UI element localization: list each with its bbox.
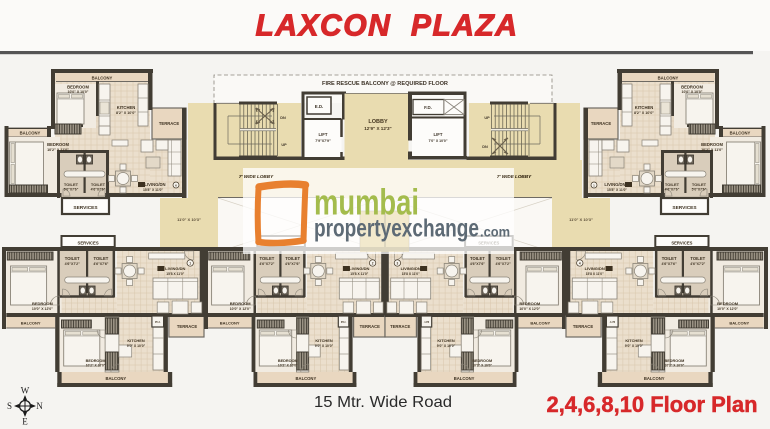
svg-text:LAXCON PLAZA: LAXCON PLAZA xyxy=(256,8,519,43)
svg-text:15 Mtr. Wide Road: 15 Mtr. Wide Road xyxy=(314,394,452,411)
svg-text:TOILET: TOILET xyxy=(665,182,680,187)
svg-text:LIVING/DN: LIVING/DN xyxy=(144,182,165,187)
svg-text:BALCONY: BALCONY xyxy=(729,321,749,326)
svg-text:7' WIDE LOBBY: 7' WIDE LOBBY xyxy=(239,174,274,179)
svg-text:LIVING/DN: LIVING/DN xyxy=(165,266,185,271)
svg-text:DN: DN xyxy=(280,116,286,120)
svg-text:10'2" X 11'0": 10'2" X 11'0" xyxy=(47,148,69,152)
svg-text:BEDROOM: BEDROOM xyxy=(86,359,106,363)
svg-text:TERRACE: TERRACE xyxy=(390,324,410,329)
svg-text:15'8 X 11'0": 15'8 X 11'0" xyxy=(402,272,420,276)
svg-text:BEDROOM: BEDROOM xyxy=(664,359,684,363)
svg-text:15'8 X 11'0": 15'8 X 11'0" xyxy=(166,272,184,276)
svg-text:3: 3 xyxy=(397,261,399,265)
svg-text:BALCONY: BALCONY xyxy=(296,376,317,381)
svg-text:11'0" X 10'3": 11'0" X 10'3" xyxy=(569,217,593,222)
svg-text:SERVICES: SERVICES xyxy=(671,241,692,246)
svg-text:1: 1 xyxy=(189,261,191,265)
svg-text:7'9"X7'9": 7'9"X7'9" xyxy=(315,139,331,143)
svg-text:TERRACE: TERRACE xyxy=(159,121,179,126)
svg-text:15'8" X 11'0": 15'8" X 11'0" xyxy=(607,188,627,192)
svg-text:TOILET: TOILET xyxy=(285,256,300,261)
svg-text:S: S xyxy=(7,401,12,411)
svg-text:10'0" X 12'0": 10'0" X 12'0" xyxy=(717,307,738,311)
svg-text:10'0" X 12'0": 10'0" X 12'0" xyxy=(32,307,53,311)
svg-text:KITCHEN: KITCHEN xyxy=(635,105,654,110)
svg-text:KITCHEN: KITCHEN xyxy=(437,338,454,343)
svg-text:TERRACE: TERRACE xyxy=(360,324,380,329)
svg-text:LOBBY: LOBBY xyxy=(368,119,388,125)
svg-text:7'0" X 10'0": 7'0" X 10'0" xyxy=(429,139,448,143)
svg-text:SERVICES: SERVICES xyxy=(78,241,99,246)
svg-text:BALCONY: BALCONY xyxy=(530,321,550,326)
svg-text:.com: .com xyxy=(480,224,510,240)
svg-text:4'6"X7'6": 4'6"X7'6" xyxy=(285,262,300,266)
svg-text:BEDROOM: BEDROOM xyxy=(472,359,492,363)
svg-text:4'6"X7'2": 4'6"X7'2" xyxy=(259,262,274,266)
svg-text:BEDROOM: BEDROOM xyxy=(278,359,298,363)
svg-text:10'2" X 10'0": 10'2" X 10'0" xyxy=(472,364,492,368)
svg-text:TOILET: TOILET xyxy=(496,256,511,261)
svg-text:BEDROOM: BEDROOM xyxy=(67,85,89,90)
svg-text:10'0" X 10'0": 10'0" X 10'0" xyxy=(68,90,89,94)
svg-text:UP: UP xyxy=(484,116,490,120)
svg-text:BEDROOM: BEDROOM xyxy=(32,301,54,306)
svg-text:KITCHEN: KITCHEN xyxy=(315,338,332,343)
svg-text:10'0" X 12'0": 10'0" X 12'0" xyxy=(230,307,251,311)
svg-text:8'2" X 10'0": 8'2" X 10'0" xyxy=(634,111,654,115)
svg-text:9'0" X 10'0": 9'0" X 10'0" xyxy=(625,344,644,348)
svg-text:E.D.: E.D. xyxy=(315,104,324,109)
svg-text:4'6"X7'6": 4'6"X7'6" xyxy=(665,188,680,192)
svg-text:F.D.: F.D. xyxy=(424,105,432,110)
svg-text:BALCONY: BALCONY xyxy=(454,376,475,381)
svg-text:BALCONY: BALCONY xyxy=(105,376,126,381)
svg-text:P.U.: P.U. xyxy=(609,320,615,324)
svg-text:KITCHEN: KITCHEN xyxy=(127,338,144,343)
svg-text:TOILET: TOILET xyxy=(470,256,485,261)
svg-text:BALCONY: BALCONY xyxy=(220,321,240,326)
svg-text:LIVING/DN: LIVING/DN xyxy=(349,266,369,271)
svg-text:4'6"X7'2": 4'6"X7'2" xyxy=(496,262,511,266)
svg-text:4'6"X7'6": 4'6"X7'6" xyxy=(662,262,677,266)
svg-text:15'8 X 11'0": 15'8 X 11'0" xyxy=(586,272,604,276)
svg-text:TOILET: TOILET xyxy=(93,256,108,261)
svg-text:4'6"X7'6": 4'6"X7'6" xyxy=(93,262,108,266)
svg-text:BEDROOM: BEDROOM xyxy=(717,301,739,306)
svg-text:P.U.: P.U. xyxy=(424,320,430,324)
svg-text:TOILET: TOILET xyxy=(692,182,707,187)
svg-text:LIVING/DN: LIVING/DN xyxy=(604,182,625,187)
svg-text:P.U.: P.U. xyxy=(341,320,347,324)
svg-text:BEDROOM: BEDROOM xyxy=(519,301,541,306)
svg-text:TERRACE: TERRACE xyxy=(573,324,593,329)
svg-text:10'2" X 11'0": 10'2" X 11'0" xyxy=(701,148,723,152)
svg-text:BALCONY: BALCONY xyxy=(92,76,113,81)
svg-text:TOILET: TOILET xyxy=(91,182,106,187)
svg-text:SERVICES: SERVICES xyxy=(73,205,98,211)
svg-text:8'2" X 10'0": 8'2" X 10'0" xyxy=(116,111,136,115)
svg-text:11'0" X 10'3": 11'0" X 10'3" xyxy=(177,217,201,222)
svg-text:BEDROOM: BEDROOM xyxy=(701,142,723,147)
svg-text:propertyexchange: propertyexchange xyxy=(314,215,479,243)
svg-text:SERVICES: SERVICES xyxy=(672,205,697,211)
svg-text:4'6"X7'2": 4'6"X7'2" xyxy=(65,262,80,266)
svg-text:9'0" X 10'0": 9'0" X 10'0" xyxy=(127,344,146,348)
svg-text:FIRE RESCUE BALCONY @ REQUIRED: FIRE RESCUE BALCONY @ REQUIRED FLOOR xyxy=(322,81,448,87)
svg-text:LIVING/DN: LIVING/DN xyxy=(401,266,421,271)
svg-text:TOILET: TOILET xyxy=(690,256,705,261)
svg-text:LIFT: LIFT xyxy=(318,132,327,137)
svg-text:BEDROOM: BEDROOM xyxy=(47,142,69,147)
svg-text:5'0"X7'6": 5'0"X7'6" xyxy=(692,188,707,192)
svg-text:KITCHEN: KITCHEN xyxy=(625,338,642,343)
svg-text:10'2" X 10'0": 10'2" X 10'0" xyxy=(665,364,685,368)
svg-text:BALCONY: BALCONY xyxy=(658,76,679,81)
svg-text:9'0" X 10'0": 9'0" X 10'0" xyxy=(437,344,456,348)
svg-text:BALCONY: BALCONY xyxy=(20,131,41,136)
svg-text:BALCONY: BALCONY xyxy=(730,131,751,136)
svg-text:LIVING/DN: LIVING/DN xyxy=(585,266,605,271)
svg-text:DN: DN xyxy=(482,145,488,149)
svg-text:BALCONY: BALCONY xyxy=(21,321,41,326)
svg-text:TOILET: TOILET xyxy=(65,256,80,261)
svg-text:2: 2 xyxy=(372,261,374,265)
svg-text:10'2" X 10'0": 10'2" X 10'0" xyxy=(278,364,298,368)
svg-text:UP: UP xyxy=(281,143,287,147)
svg-text:15'8" X 11'0": 15'8" X 11'0" xyxy=(143,188,163,192)
svg-text:TOILET: TOILET xyxy=(64,182,79,187)
svg-text:4: 4 xyxy=(579,261,581,265)
svg-text:10'0" X 10'0": 10'0" X 10'0" xyxy=(682,90,703,94)
svg-text:TOILET: TOILET xyxy=(259,256,274,261)
svg-text:N: N xyxy=(36,401,43,411)
svg-text:10'2" X 10'0": 10'2" X 10'0" xyxy=(86,364,106,368)
svg-text:E: E xyxy=(22,417,28,427)
svg-text:KITCHEN: KITCHEN xyxy=(117,105,136,110)
svg-text:4'6"X7'2": 4'6"X7'2" xyxy=(690,262,705,266)
svg-text:7' WIDE LOBBY: 7' WIDE LOBBY xyxy=(497,174,532,179)
svg-text:P.U.: P.U. xyxy=(155,320,161,324)
svg-text:BALCONY: BALCONY xyxy=(644,376,665,381)
svg-text:TERRACE: TERRACE xyxy=(591,121,611,126)
svg-text:9'0" X 10'0": 9'0" X 10'0" xyxy=(315,344,334,348)
svg-text:10'0" X 12'0": 10'0" X 12'0" xyxy=(519,307,540,311)
svg-text:TERRACE: TERRACE xyxy=(177,324,197,329)
svg-text:4'6"X7'6": 4'6"X7'6" xyxy=(91,188,106,192)
svg-text:15'8 X 11'0": 15'8 X 11'0" xyxy=(350,272,368,276)
svg-text:BEDROOM: BEDROOM xyxy=(230,301,252,306)
svg-text:5'0"X7'6": 5'0"X7'6" xyxy=(64,188,79,192)
svg-text:TOILET: TOILET xyxy=(662,256,677,261)
svg-text:BEDROOM: BEDROOM xyxy=(681,85,703,90)
svg-text:12'9" X 12'3": 12'9" X 12'3" xyxy=(364,126,392,131)
svg-text:4'6"X7'6": 4'6"X7'6" xyxy=(470,262,485,266)
svg-text:2,4,6,8,10 Floor Plan: 2,4,6,8,10 Floor Plan xyxy=(547,392,758,417)
svg-text:W: W xyxy=(21,386,30,396)
svg-text:LIFT: LIFT xyxy=(433,132,442,137)
